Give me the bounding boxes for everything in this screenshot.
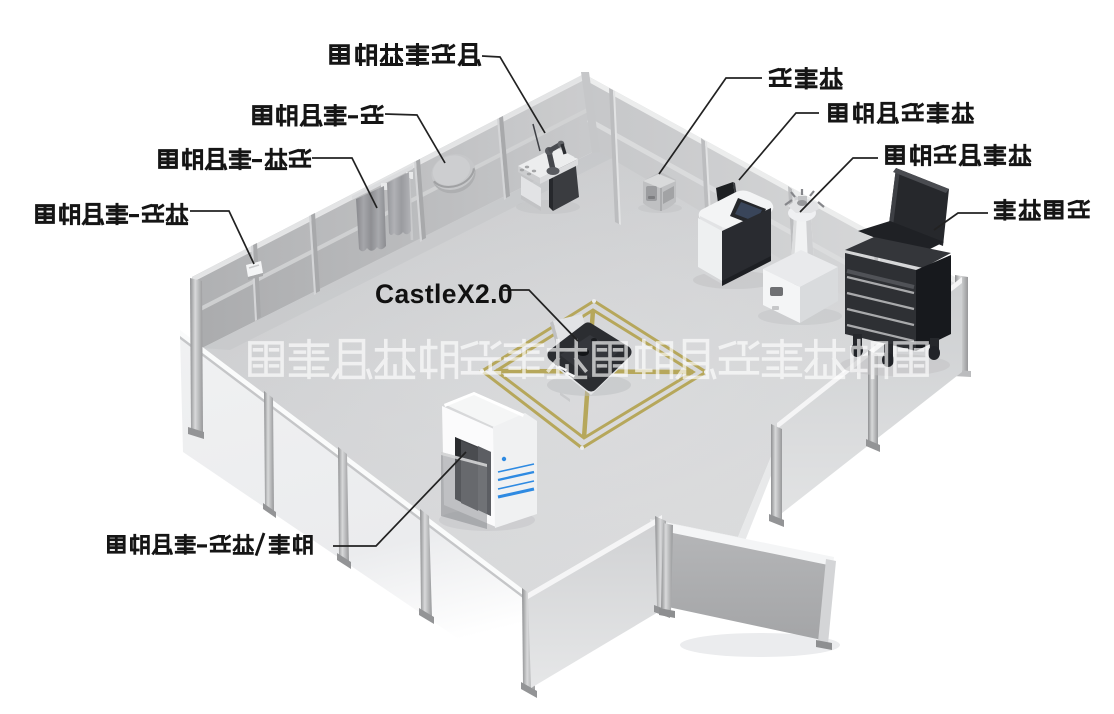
svg-text:CastleX2.0: CastleX2.0 [375,279,513,309]
